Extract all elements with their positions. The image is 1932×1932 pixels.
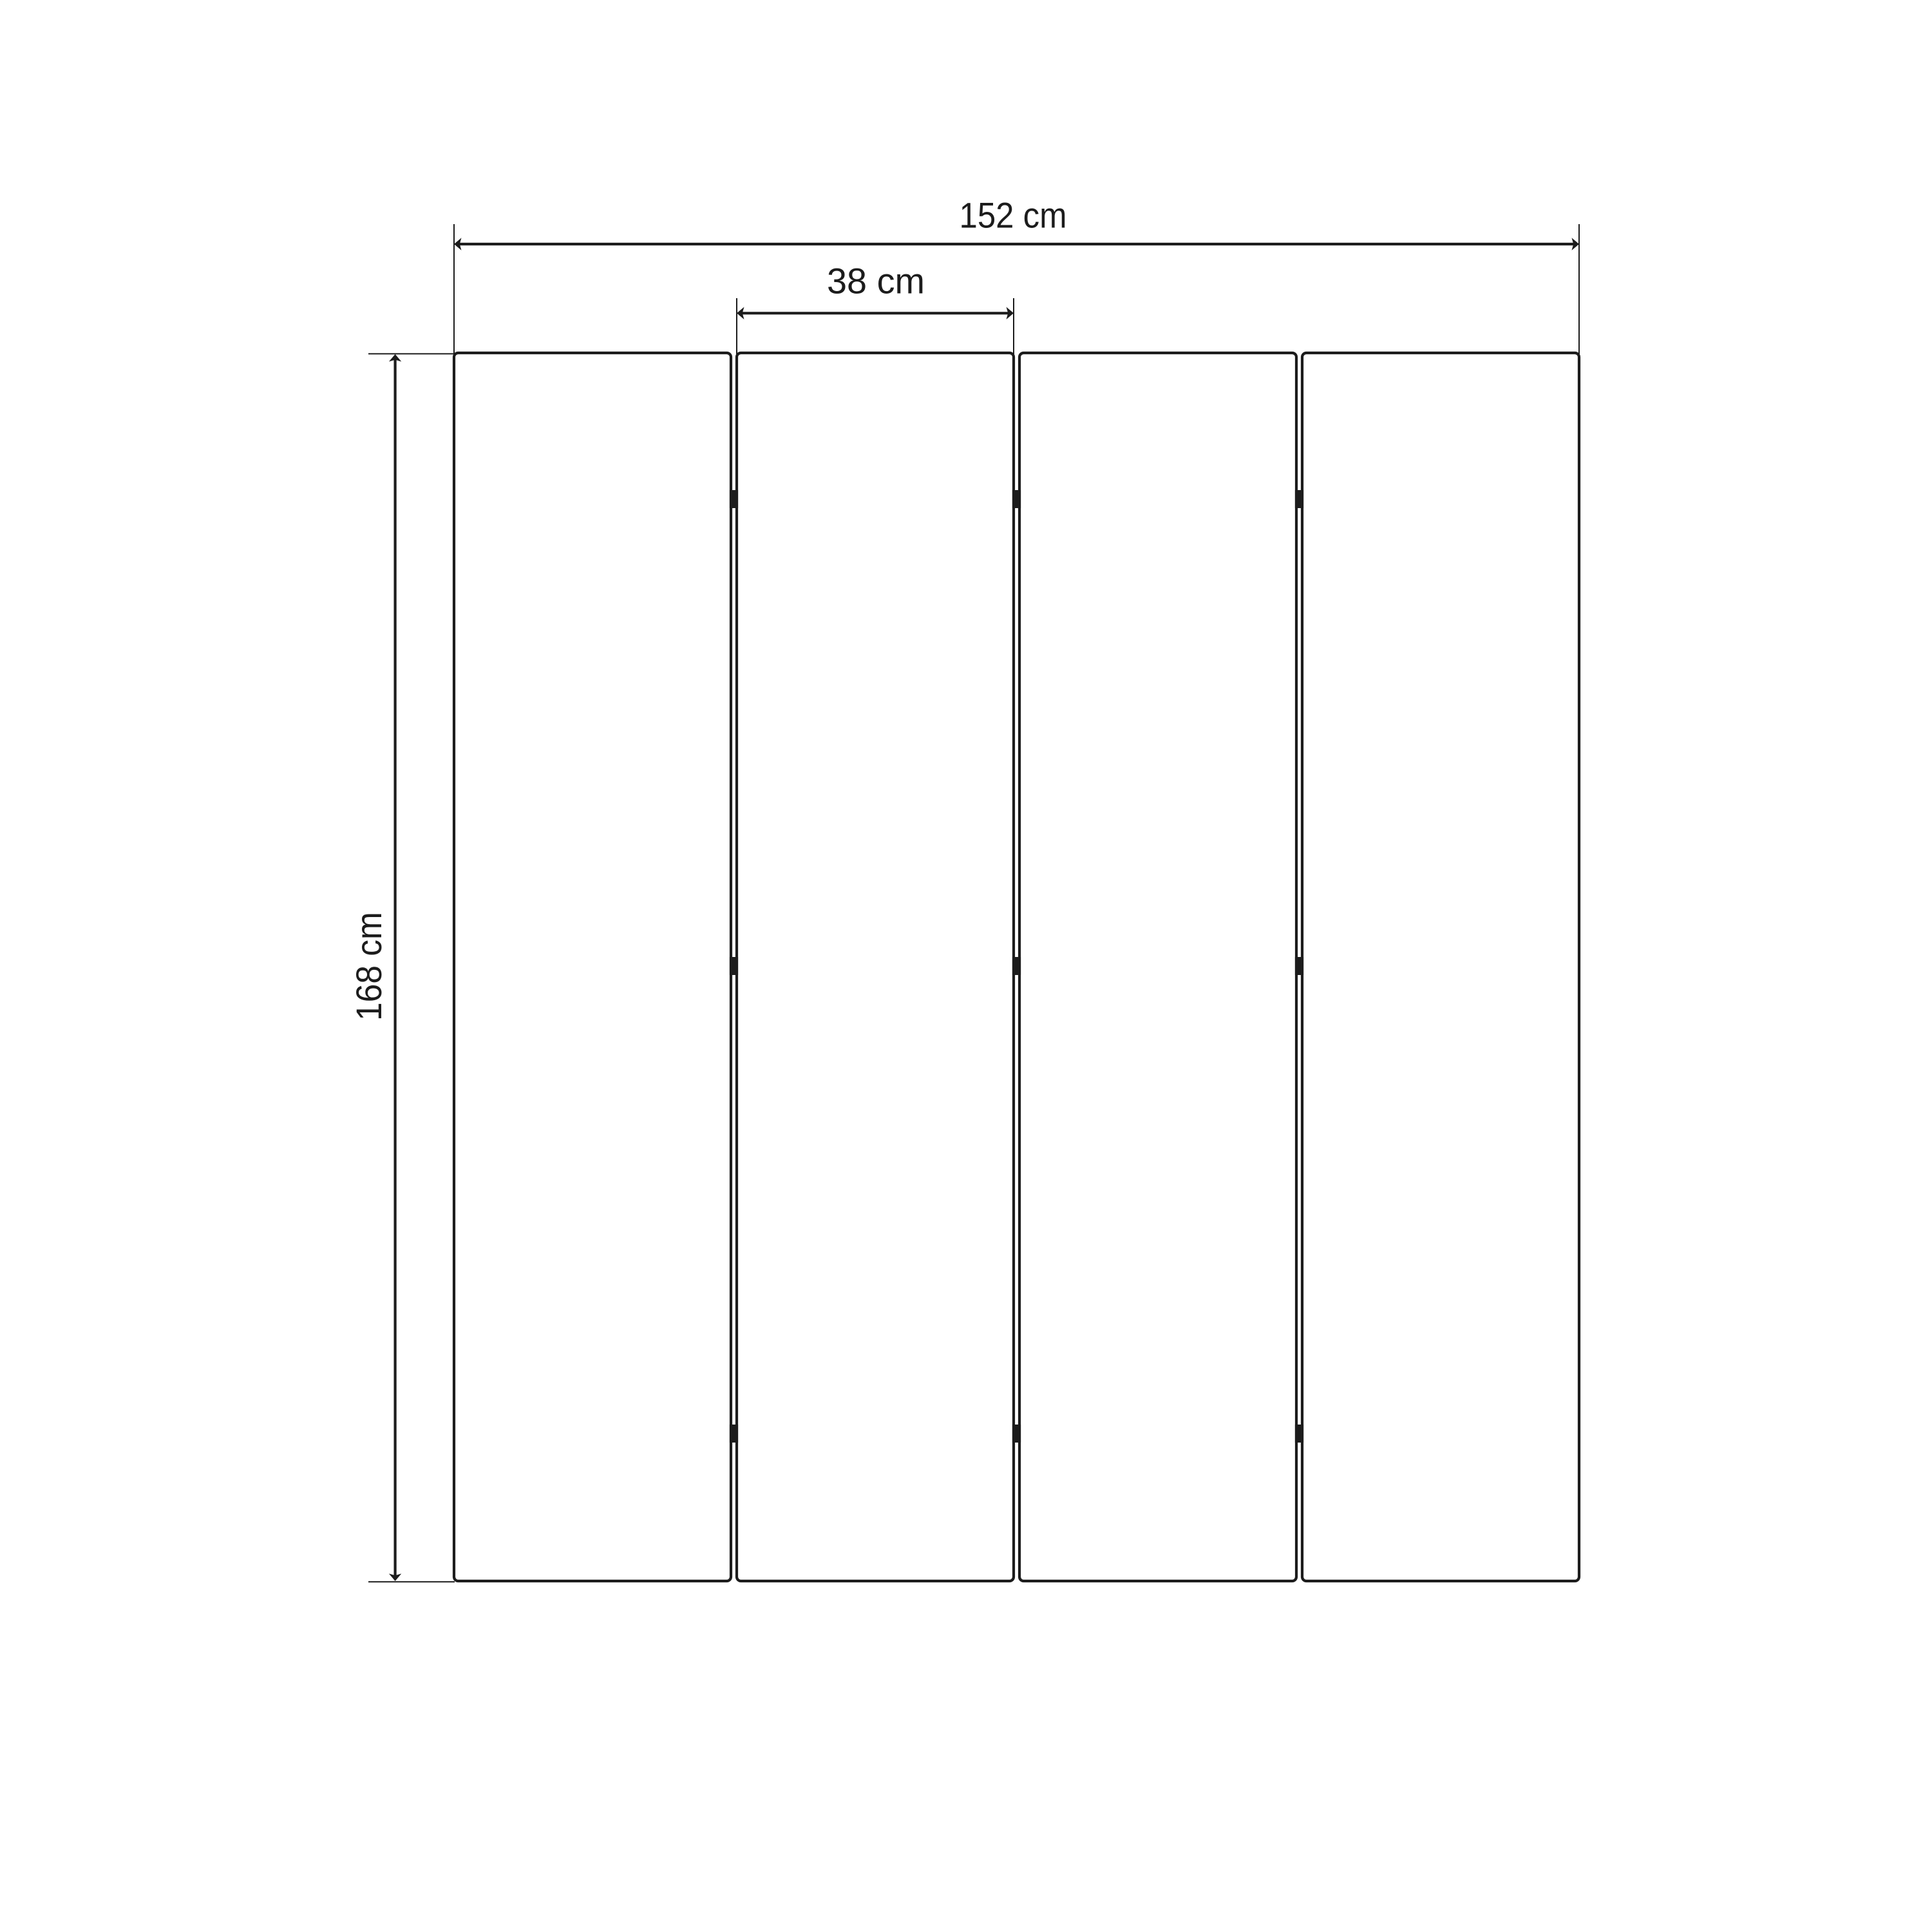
svg-text:168 cm: 168 cm <box>349 912 389 1021</box>
svg-text:152 cm: 152 cm <box>960 196 1067 236</box>
svg-text:38 cm: 38 cm <box>827 261 925 301</box>
